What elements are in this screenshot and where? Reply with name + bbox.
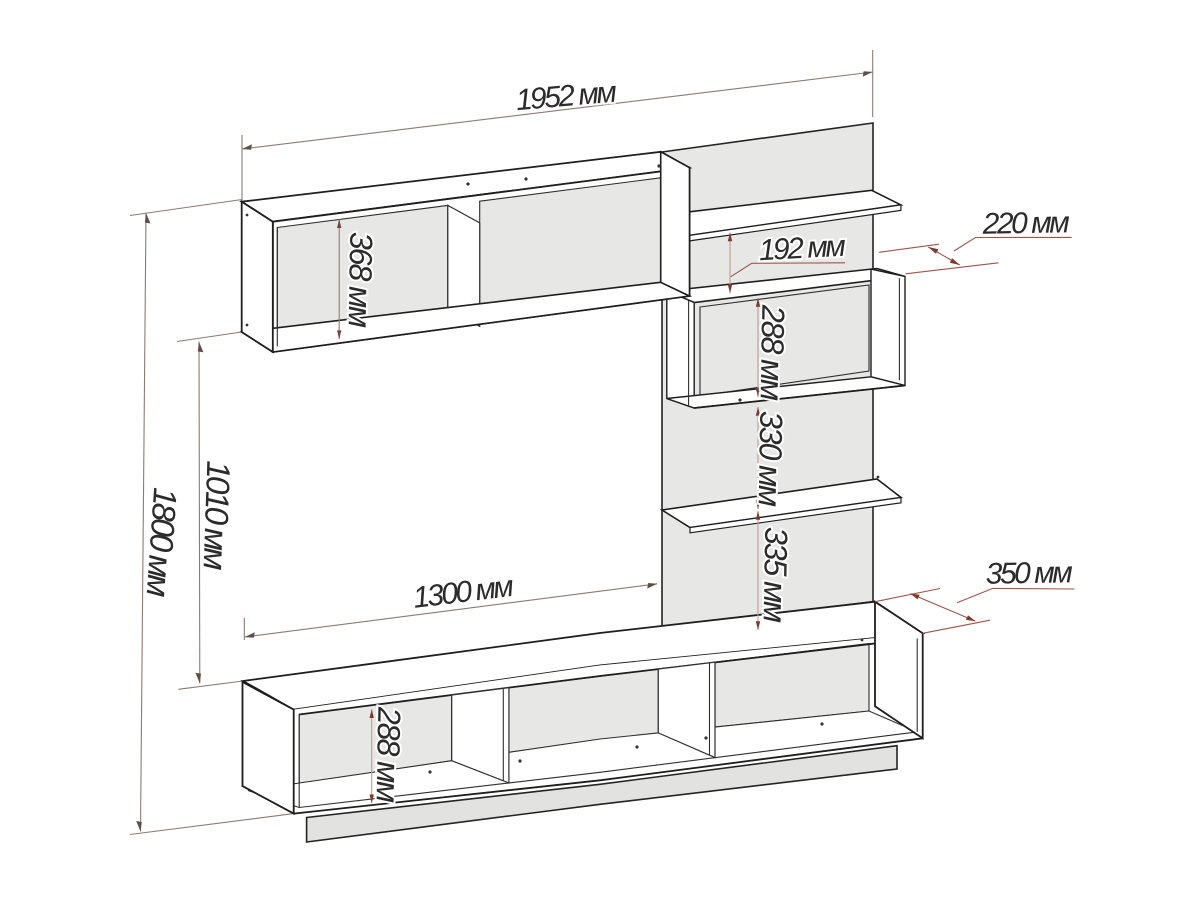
svg-text:1800 мм: 1800 мм [140,486,185,598]
svg-text:350 мм: 350 мм [985,556,1072,591]
svg-text:288 мм: 288 мм [754,304,792,402]
svg-text:1010 мм: 1010 мм [197,460,238,570]
svg-text:192 мм: 192 мм [758,230,846,267]
svg-text:288 мм: 288 мм [370,706,408,804]
svg-text:330 мм: 330 мм [752,411,790,508]
svg-text:220 мм: 220 мм [981,206,1069,241]
svg-text:368 мм: 368 мм [342,232,380,329]
svg-text:335 мм: 335 мм [757,527,795,624]
